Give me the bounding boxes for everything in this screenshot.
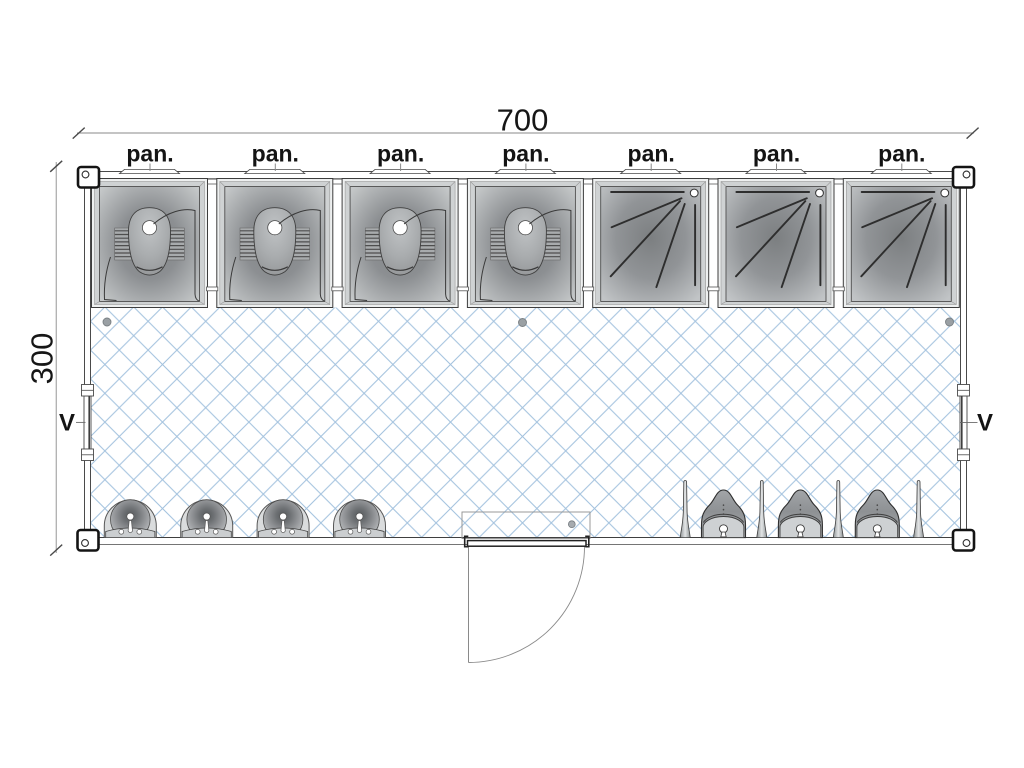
svg-text:pan.: pan. bbox=[502, 141, 549, 167]
svg-text:pan.: pan. bbox=[753, 141, 800, 167]
svg-text:V: V bbox=[977, 410, 993, 437]
svg-text:pan.: pan. bbox=[377, 141, 424, 167]
svg-text:pan.: pan. bbox=[628, 141, 675, 167]
svg-text:700: 700 bbox=[497, 103, 549, 138]
svg-text:pan.: pan. bbox=[126, 141, 173, 167]
svg-text:300: 300 bbox=[25, 333, 60, 385]
svg-text:pan.: pan. bbox=[252, 141, 299, 167]
svg-text:pan.: pan. bbox=[878, 141, 925, 167]
svg-text:V: V bbox=[59, 410, 75, 437]
